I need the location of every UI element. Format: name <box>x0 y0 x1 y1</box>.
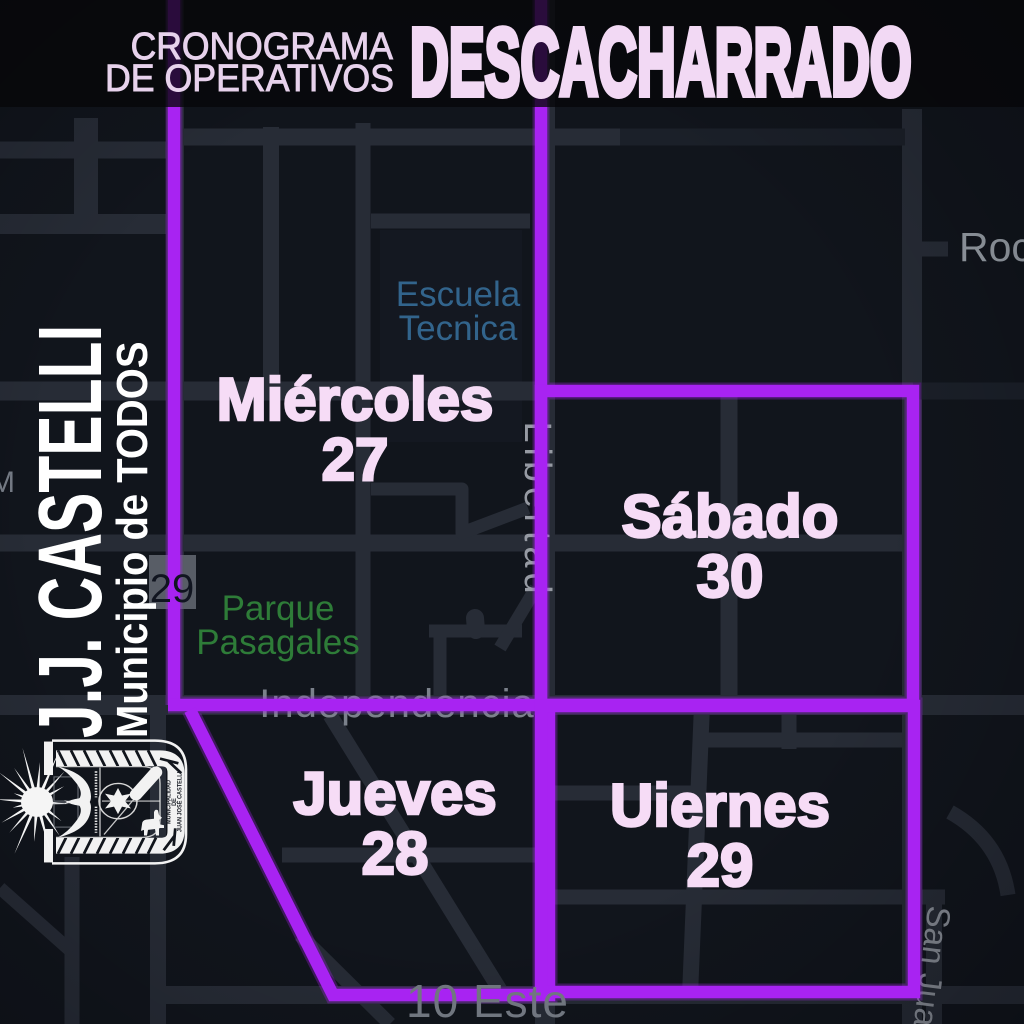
svg-text:Sábado: Sábado <box>622 483 839 550</box>
svg-text:DESCACHARRADO: DESCACHARRADO <box>410 10 912 116</box>
svg-text:10 Este: 10 Este <box>406 975 569 1024</box>
svg-text:JUAN JOSÉ CASTELLI: JUAN JOSÉ CASTELLI <box>175 771 183 832</box>
svg-text:27: 27 <box>322 426 389 493</box>
svg-text:Municipio de TODOS: Municipio de TODOS <box>107 342 156 738</box>
svg-text:30: 30 <box>697 543 764 610</box>
svg-text:DE OPERATIVOS: DE OPERATIVOS <box>105 57 394 99</box>
svg-text:28: 28 <box>362 820 429 887</box>
svg-text:29: 29 <box>687 832 754 899</box>
svg-text:Jueves: Jueves <box>293 760 497 827</box>
svg-text:Miércoles: Miércoles <box>217 366 494 433</box>
svg-text:Uiernes: Uiernes <box>610 772 830 839</box>
svg-text:J.J. CASTELLI: J.J. CASTELLI <box>21 325 121 738</box>
